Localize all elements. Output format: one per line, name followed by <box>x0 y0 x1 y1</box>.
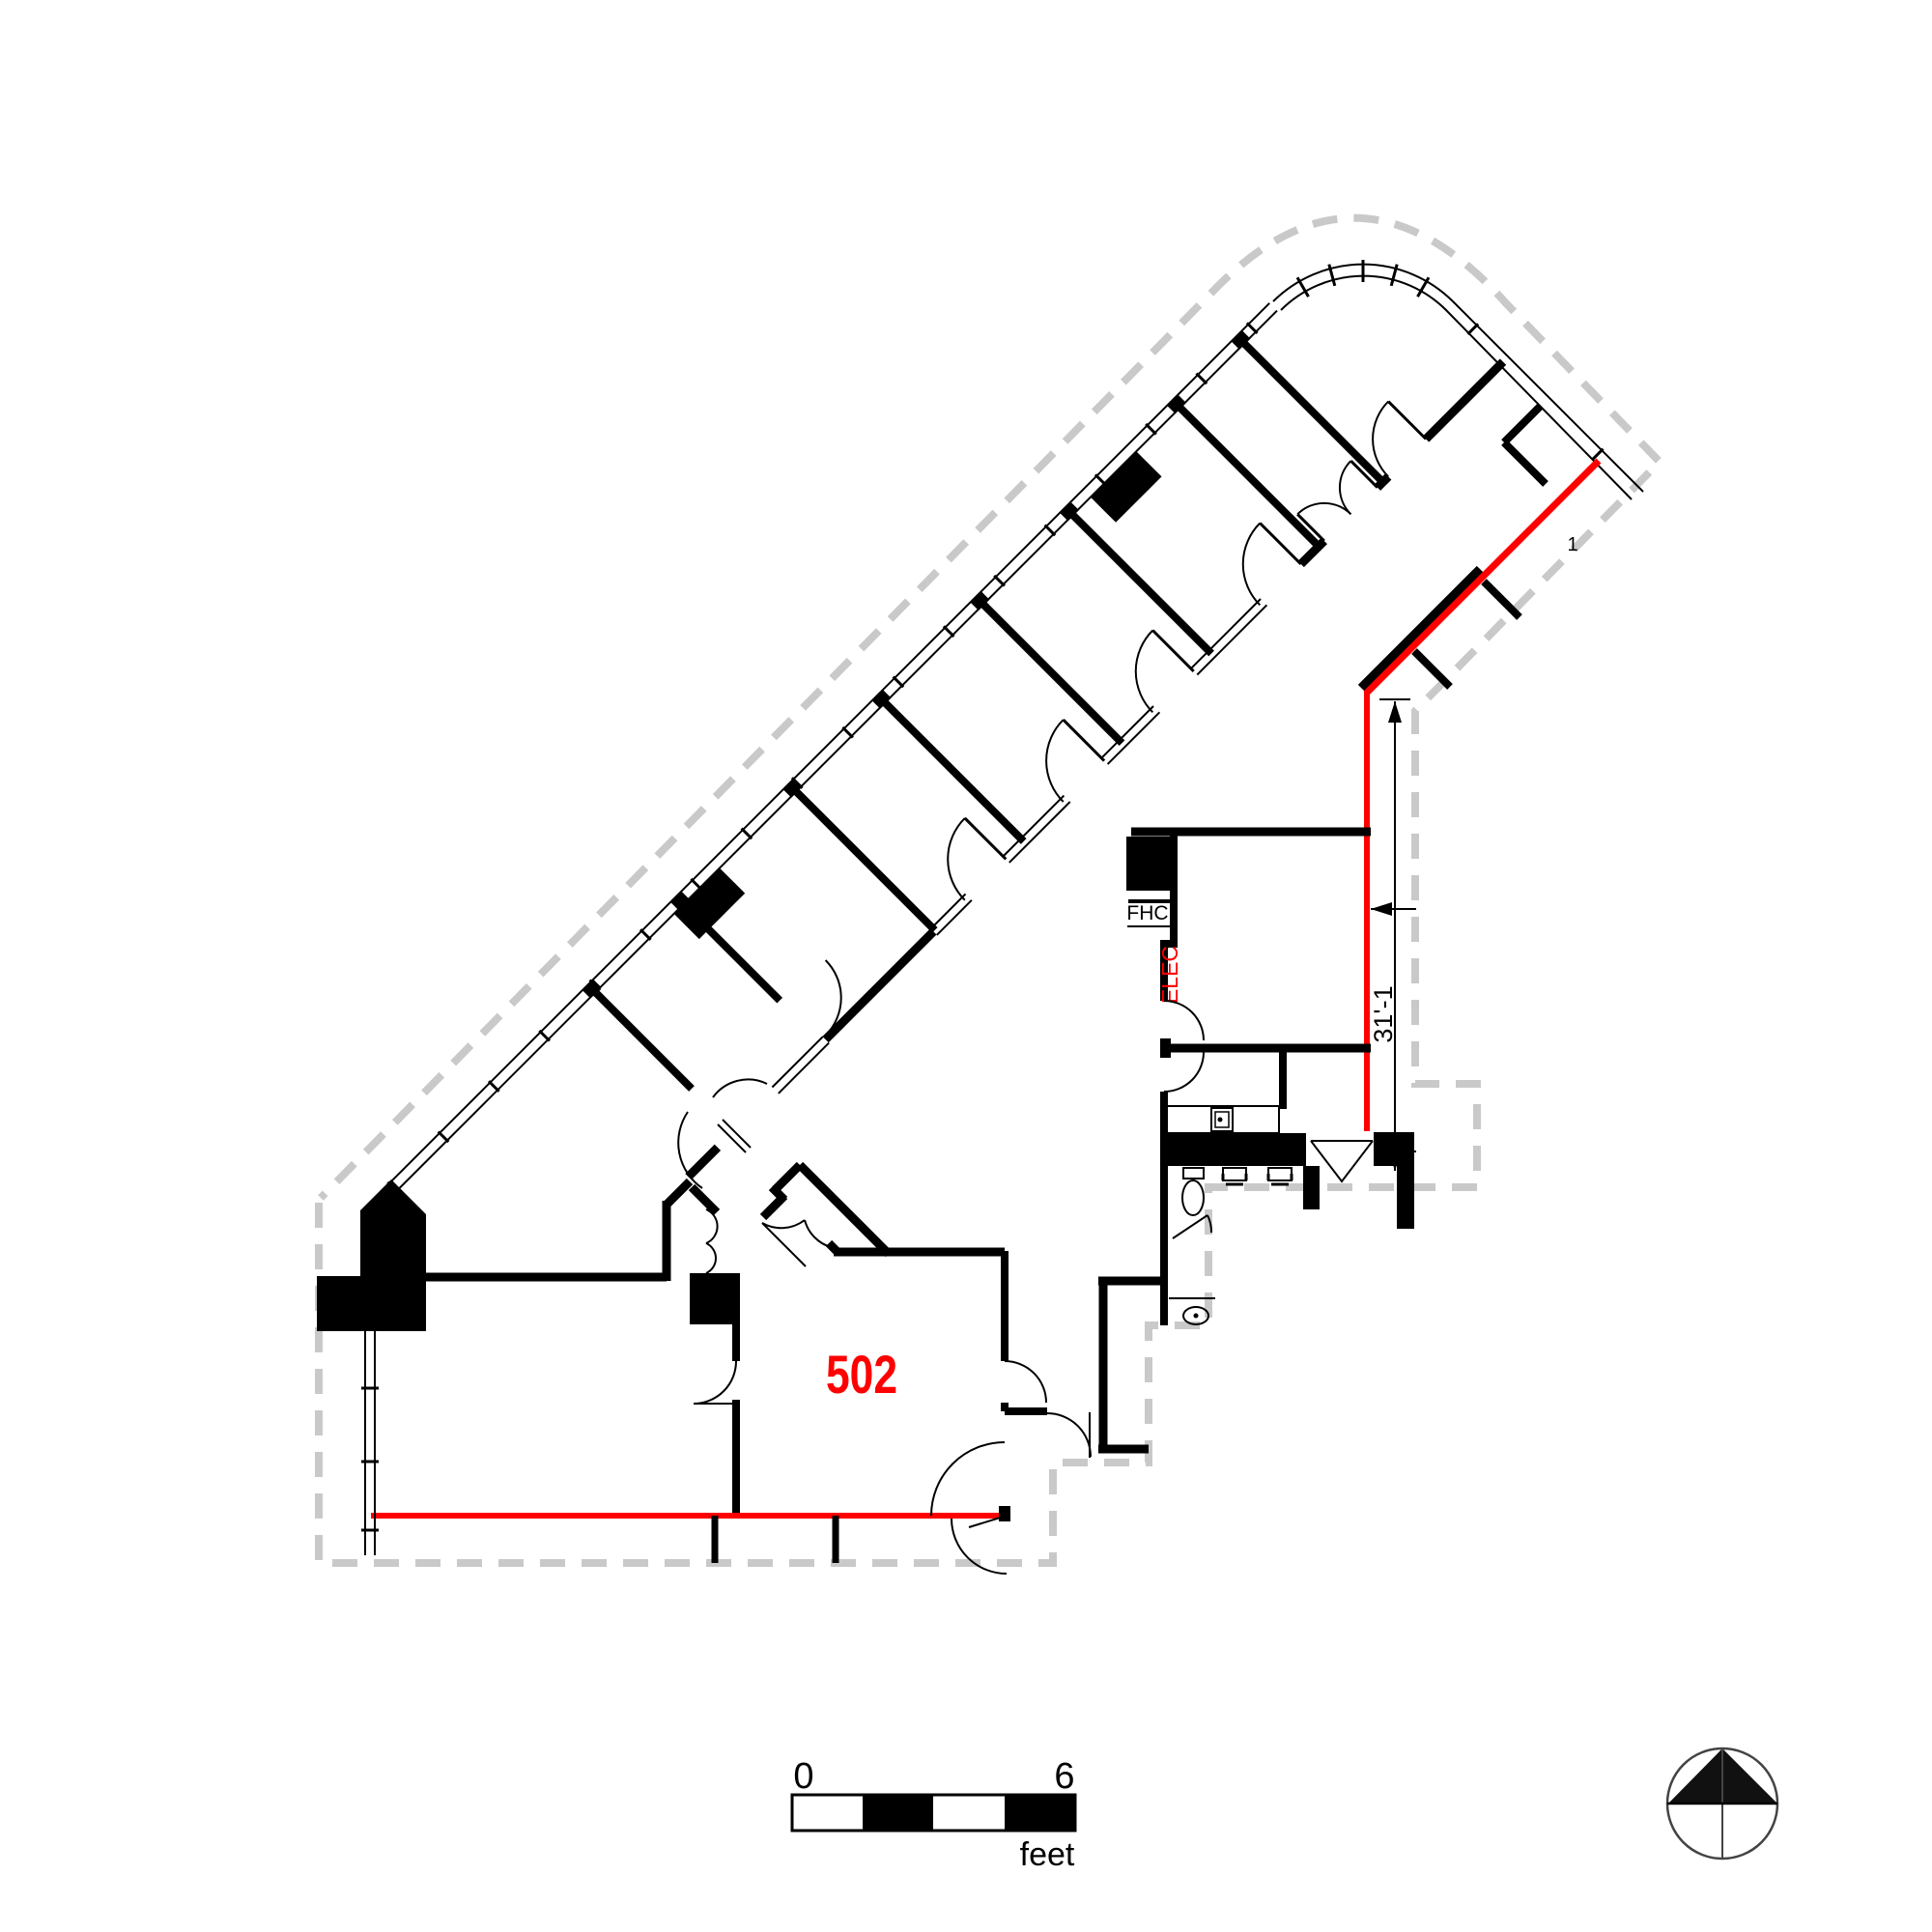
svg-text:0: 0 <box>793 1756 813 1797</box>
svg-text:31'-1: 31'-1 <box>1369 985 1398 1042</box>
svg-text:502: 502 <box>826 1344 897 1405</box>
svg-text:FHC: FHC <box>1126 902 1168 924</box>
svg-text:feet: feet <box>1020 1836 1075 1873</box>
svg-text:1: 1 <box>1567 534 1577 555</box>
svg-text:6: 6 <box>1054 1756 1074 1797</box>
svg-text:ELEC: ELEC <box>1157 946 1182 1004</box>
